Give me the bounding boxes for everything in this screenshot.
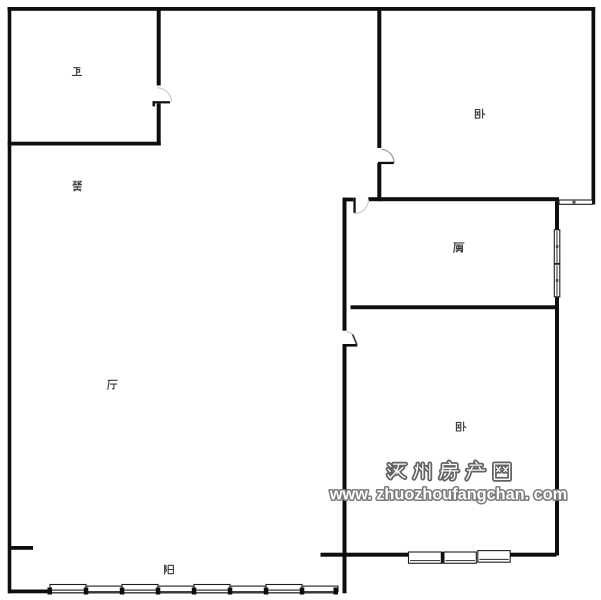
svg-text:www. zhuozhoufangchan. com: www. zhuozhoufangchan. com	[329, 486, 567, 504]
